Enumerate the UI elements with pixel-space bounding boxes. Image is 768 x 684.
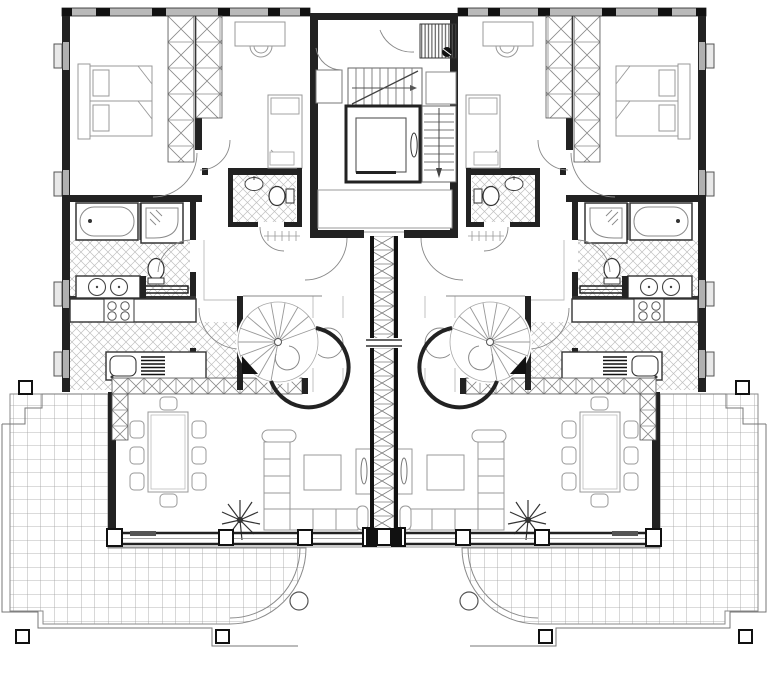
floor-plan-drawing bbox=[0, 0, 768, 684]
fan-icon bbox=[442, 47, 452, 57]
elevator bbox=[346, 106, 420, 182]
party-wall bbox=[366, 236, 402, 546]
core-closet bbox=[316, 70, 342, 103]
landing-mat bbox=[318, 190, 452, 228]
floor-plan-page bbox=[0, 0, 768, 684]
